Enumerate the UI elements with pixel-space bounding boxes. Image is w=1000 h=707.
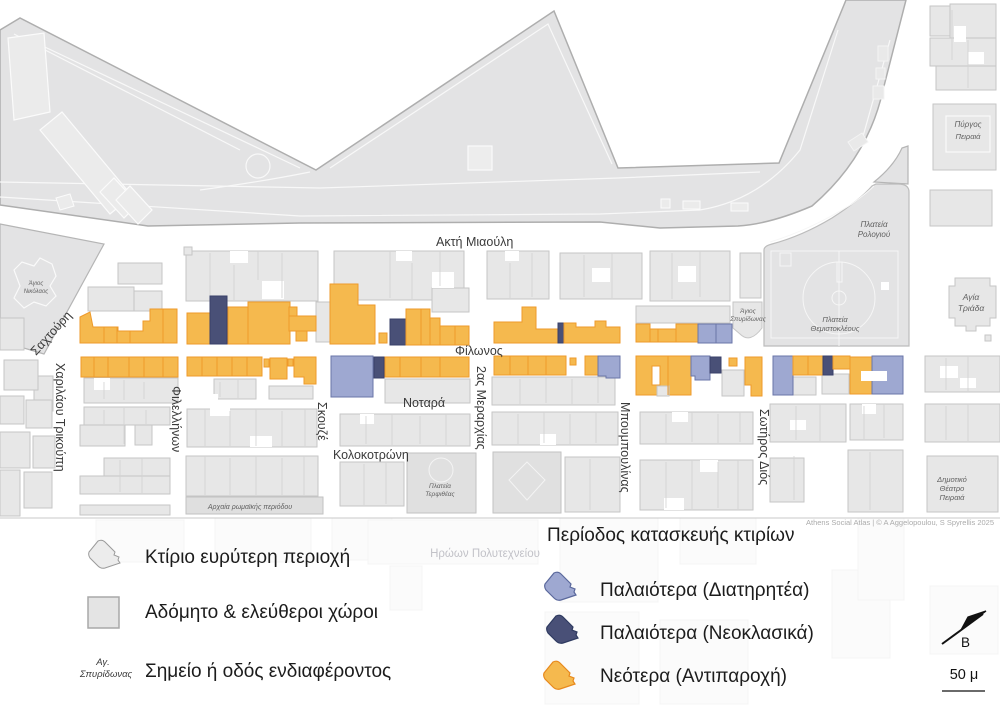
svg-text:Αγία: Αγία bbox=[962, 292, 981, 302]
svg-text:Φιλελλήνων: Φιλελλήνων bbox=[169, 386, 183, 452]
svg-text:Κολοκοτρώνη: Κολοκοτρώνη bbox=[333, 448, 409, 462]
svg-text:B: B bbox=[961, 635, 970, 650]
svg-text:Ηρώων Πολυτεχνείου: Ηρώων Πολυτεχνείου bbox=[430, 548, 540, 560]
svg-text:Τερψιθέας: Τερψιθέας bbox=[425, 490, 455, 498]
svg-text:Πειραιά: Πειραιά bbox=[940, 493, 966, 502]
svg-text:50 μ: 50 μ bbox=[950, 667, 979, 683]
svg-text:Αρχαία ρωμαϊκής περιόδου: Αρχαία ρωμαϊκής περιόδου bbox=[207, 503, 292, 511]
svg-text:Νεότερα (Αντιπαροχή): Νεότερα (Αντιπαροχή) bbox=[600, 666, 787, 687]
svg-text:Σκουζέ: Σκουζέ bbox=[315, 402, 329, 441]
svg-text:Άγιος: Άγιος bbox=[28, 281, 44, 287]
svg-text:Πύργος: Πύργος bbox=[954, 120, 981, 129]
svg-text:Παλαιότερα (Νεοκλασικά): Παλαιότερα (Νεοκλασικά) bbox=[600, 623, 814, 644]
svg-text:Θεμιστοκλέους: Θεμιστοκλέους bbox=[811, 324, 860, 333]
svg-text:Πλατεία: Πλατεία bbox=[860, 220, 887, 229]
svg-text:Σωτήρος Διός: Σωτήρος Διός bbox=[757, 409, 771, 485]
svg-text:Αδόμητο & ελεύθεροι χώροι: Αδόμητο & ελεύθεροι χώροι bbox=[145, 602, 378, 623]
svg-text:Αγ.: Αγ. bbox=[95, 657, 110, 668]
svg-text:Μπουμπουλίνας: Μπουμπουλίνας bbox=[618, 402, 632, 493]
svg-text:Πλατεία: Πλατεία bbox=[822, 315, 848, 324]
svg-text:Θέατρο: Θέατρο bbox=[940, 484, 965, 493]
svg-text:Δημοτικό: Δημοτικό bbox=[936, 475, 967, 484]
svg-text:Ακτή Μιαούλη: Ακτή Μιαούλη bbox=[436, 235, 513, 249]
svg-text:Σπυρίδωνας: Σπυρίδωνας bbox=[729, 315, 767, 323]
svg-text:Πλατεία: Πλατεία bbox=[429, 482, 451, 490]
svg-text:Νοταρά: Νοταρά bbox=[403, 396, 445, 410]
svg-text:Φίλωνος: Φίλωνος bbox=[455, 344, 503, 358]
svg-text:Παλαιότερα (Διατηρητέα): Παλαιότερα (Διατηρητέα) bbox=[600, 580, 809, 601]
svg-text:Athens Social Atlas | © A Agge: Athens Social Atlas | © A Aggelopoulou, … bbox=[806, 518, 994, 527]
svg-text:Χαριλάου Τρικούπη: Χαριλάου Τρικούπη bbox=[53, 363, 67, 472]
svg-text:Νικόλαος: Νικόλαος bbox=[24, 288, 49, 295]
svg-text:Τριάδα: Τριάδα bbox=[958, 303, 986, 313]
svg-text:Σπυρίδωνας: Σπυρίδωνας bbox=[79, 669, 133, 680]
svg-text:2ας Μεραρχίας: 2ας Μεραρχίας bbox=[474, 366, 488, 450]
svg-text:Περίοδος κατασκευής κτιρίων: Περίοδος κατασκευής κτιρίων bbox=[547, 525, 795, 546]
svg-text:Πειραιά: Πειραιά bbox=[956, 132, 982, 141]
svg-text:Κτίριο ευρύτερη περιοχή: Κτίριο ευρύτερη περιοχή bbox=[145, 547, 350, 568]
svg-text:Ρολογιού: Ρολογιού bbox=[858, 230, 891, 239]
svg-text:Άγιος: Άγιος bbox=[739, 308, 757, 315]
svg-text:Σημείο ή οδός ενδιαφέροντος: Σημείο ή οδός ενδιαφέροντος bbox=[145, 661, 391, 682]
